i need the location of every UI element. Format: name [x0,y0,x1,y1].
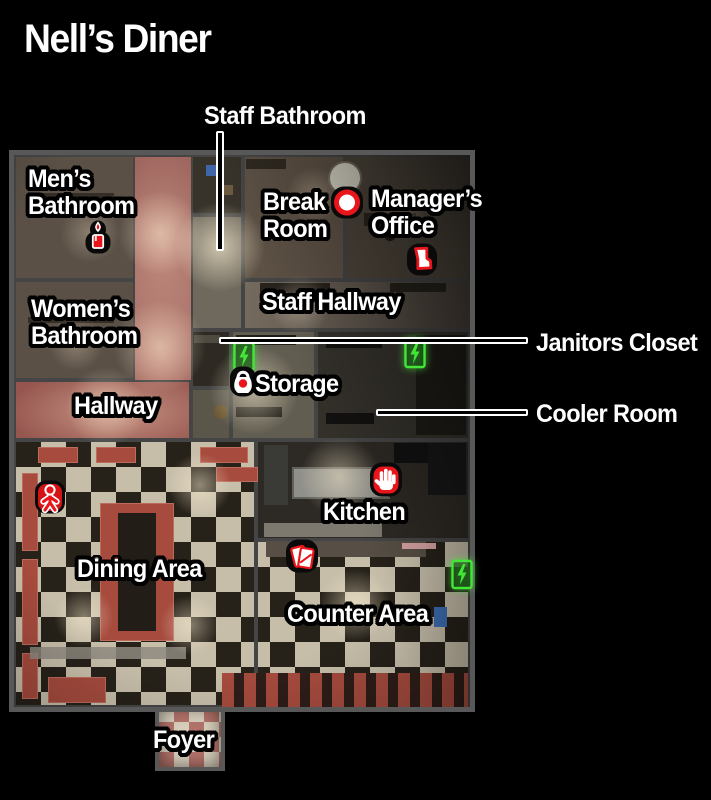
label-mens-bathroom: Men’s Bathroom [28,166,134,220]
vending-object [434,607,447,627]
label-break-room: Break Room [263,189,327,243]
tarot-cards-icon [283,537,321,582]
bottom-booth-row [222,673,468,707]
label-staff-bathroom: Staff Bathroom [204,103,366,130]
label-line: Men’s [28,166,134,193]
dining-booth [38,447,78,463]
dining-booth [216,467,258,482]
label-line: Room [263,216,327,243]
nells-diner-map-page: Nell’s Diner [0,0,711,800]
dining-booth [48,677,106,703]
label-cooler-room: Cooler Room [536,401,677,428]
boot-icon [403,240,441,285]
kitchen-steel-counter [264,445,288,505]
dining-booth [22,653,38,699]
label-foyer: Foyer [153,727,214,754]
label-janitors-closet: Janitors Closet [536,330,697,357]
kitchen-fridge [428,443,466,495]
candle-icon [83,220,113,261]
page-title: Nell’s Diner [24,16,211,62]
label-line: Women’s [31,296,137,323]
janitors-closet-pointer-line [219,337,528,344]
label-line: Manager’s [371,186,482,213]
janitor-shelf [194,335,220,343]
plate-icon [329,185,365,226]
label-storage: Storage [255,371,339,398]
dining-booth [22,559,38,645]
cooler-room-pointer-line [376,409,528,416]
label-womens-bathroom: Women’s Bathroom [31,296,137,350]
counter-tray [402,543,436,549]
label-kitchen: Kitchen [323,499,405,526]
break-room-counter [246,159,286,169]
fusebox-icon [450,559,474,596]
label-line: Office [371,213,482,240]
dining-booth [96,447,136,463]
staff-bathroom-pointer-line [216,131,224,251]
doll-icon [32,478,68,523]
bottom-counter [30,647,186,659]
label-managers-office: Manager’s Office [371,186,482,240]
label-line: Break [263,189,327,216]
storage-shelf [236,407,282,417]
label-counter-area: Counter Area [287,601,428,628]
label-line: Bathroom [28,193,134,220]
dining-booth [200,447,248,463]
label-staff-hallway: Staff Hallway [262,289,401,316]
label-dining-area: Dining Area [77,556,202,583]
barrel [214,405,228,419]
label-hallway: Hallway [74,393,158,420]
cooler-shelf [326,413,374,424]
label-line: Bathroom [31,323,137,350]
